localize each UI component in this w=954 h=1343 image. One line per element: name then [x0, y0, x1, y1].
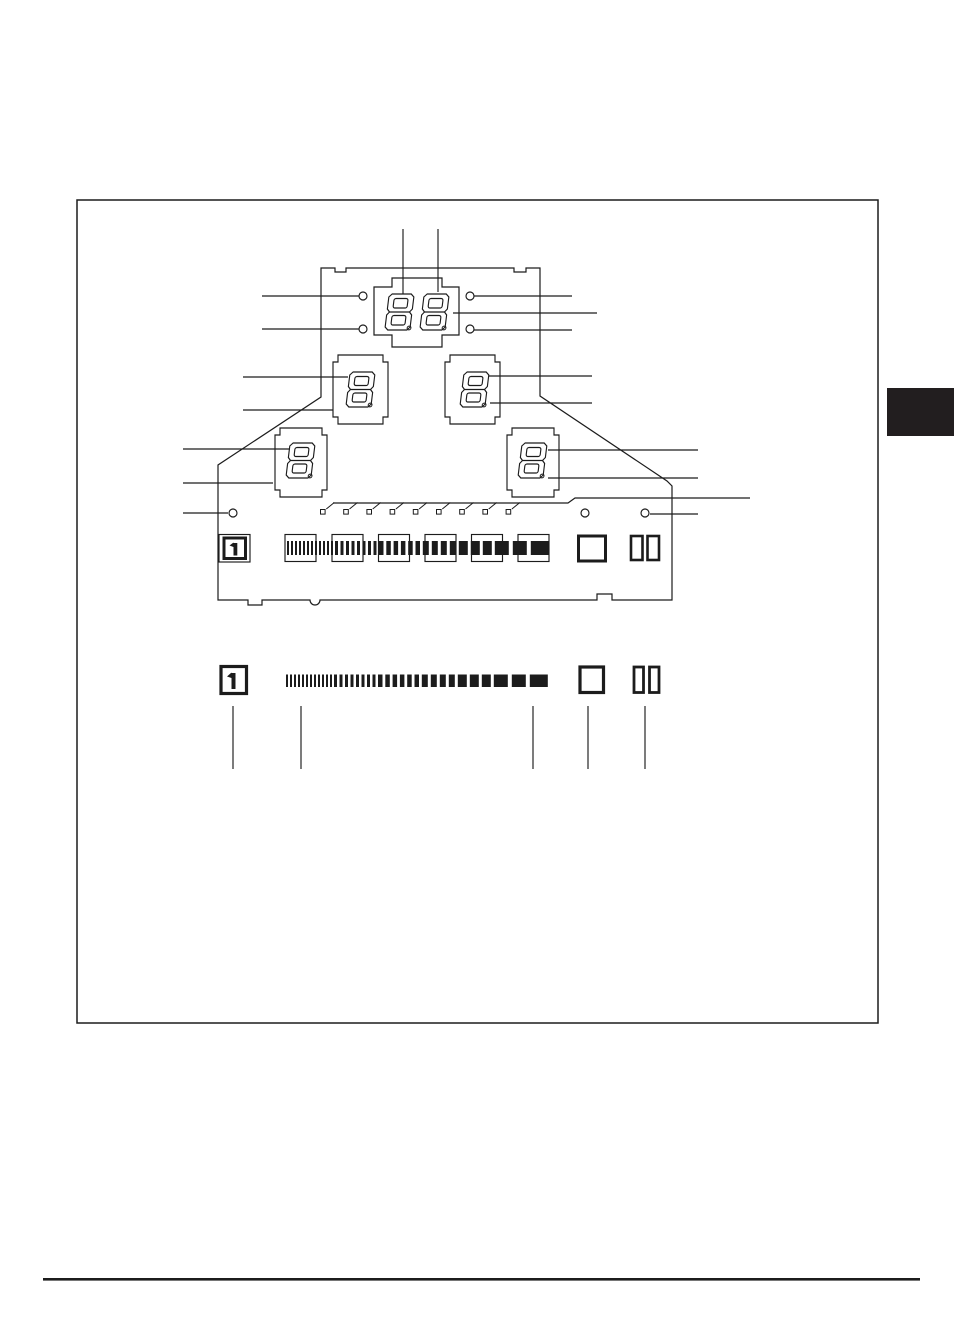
bar-segment	[330, 675, 332, 688]
bar-segment	[379, 541, 384, 555]
indicator-dot	[229, 509, 237, 517]
bar-segment	[458, 675, 467, 688]
square-window-icon	[579, 536, 606, 561]
bar-segment	[482, 675, 491, 688]
bar-segment	[326, 675, 328, 688]
bar-segment	[432, 541, 438, 555]
seven-segment-digit	[385, 294, 415, 330]
digit-window	[507, 428, 559, 497]
tick-mark	[437, 503, 451, 515]
bar-segment	[368, 541, 371, 555]
digit-bottom-loop	[292, 464, 307, 473]
indicator-dot	[581, 509, 589, 517]
bar-segment	[294, 675, 296, 688]
bar-segment	[306, 675, 308, 688]
tick-square	[344, 510, 349, 515]
seven-segment-digit	[460, 372, 490, 407]
indicator-dot	[466, 325, 474, 333]
bar-segment	[341, 541, 344, 555]
bar-scale-icon	[287, 541, 549, 555]
indicator-dot	[359, 292, 367, 300]
bar-segment	[530, 675, 548, 688]
bar-segment	[322, 675, 324, 688]
bar-segment	[483, 541, 492, 555]
bar-segment	[374, 541, 377, 555]
bar-segment	[394, 541, 399, 555]
one-glyph	[234, 543, 238, 556]
lcd-diagram-svg	[0, 0, 954, 1343]
digit-top-loop	[468, 377, 483, 386]
bar-segment	[299, 541, 301, 555]
bar-segment	[291, 541, 293, 555]
bar-segment	[319, 541, 321, 555]
bar-segment	[512, 675, 526, 688]
seven-segment-digit	[518, 443, 548, 478]
legend-row	[221, 667, 659, 770]
bar-segment	[340, 675, 343, 688]
bar-segment	[408, 541, 413, 555]
tick-square	[390, 510, 395, 515]
bar-segment	[345, 675, 348, 688]
double-bar-icon	[634, 667, 644, 693]
bar-segment	[314, 675, 316, 688]
bar-segment	[298, 675, 300, 688]
digit-top-loop	[354, 377, 369, 386]
tick-mark	[344, 503, 358, 515]
callout-line-jogged	[333, 498, 750, 503]
bar-segment	[393, 675, 398, 688]
bar-segment	[415, 675, 420, 688]
tick-mark	[413, 503, 427, 515]
boxed-one-icon	[221, 667, 247, 694]
bar-segment	[407, 675, 412, 688]
bar-segment	[449, 675, 455, 688]
bar-segment	[495, 541, 509, 555]
bar-segment	[400, 675, 405, 688]
bar-segment	[367, 675, 370, 688]
digit-bottom-loop	[466, 393, 481, 402]
indicator-dot	[641, 509, 649, 517]
digit-bottom-loop	[524, 464, 539, 473]
bar-segment	[286, 675, 288, 688]
tick-square	[460, 510, 465, 515]
double-bar-icon	[648, 536, 660, 560]
bar-segment	[323, 541, 325, 555]
tick-mark	[460, 503, 474, 515]
bar-segment	[357, 541, 360, 555]
tick-square	[413, 510, 418, 515]
bar-segment	[431, 675, 437, 688]
digit-bottom-loop	[426, 316, 441, 326]
bar-segment	[335, 541, 338, 555]
one-glyph-flag	[230, 543, 234, 548]
tick-mark	[506, 503, 520, 515]
bar-segment	[450, 541, 456, 555]
bar-segment	[362, 675, 365, 688]
indicator-dot	[466, 292, 474, 300]
bar-segment	[334, 675, 337, 688]
double-bar-icon	[631, 536, 643, 560]
bar-segment	[471, 541, 480, 555]
tick-mark	[367, 503, 381, 515]
bar-segment	[385, 675, 390, 688]
bar-segment	[441, 541, 447, 555]
bar-segment	[327, 541, 329, 555]
bar-segment	[373, 675, 376, 688]
one-glyph	[232, 673, 236, 689]
digit-bottom-loop	[391, 316, 406, 326]
bar-segment	[416, 541, 421, 555]
digit-top-loop	[393, 299, 408, 309]
tick-square	[367, 510, 372, 515]
two-digit-window	[374, 278, 459, 347]
digit-top-loop	[428, 299, 443, 309]
bar-segment	[356, 675, 359, 688]
bar-segment	[378, 675, 383, 688]
tick-flick	[326, 503, 334, 510]
indicator-dot	[359, 325, 367, 333]
bar-segment	[311, 541, 313, 555]
bar-segment	[346, 541, 349, 555]
tick-square	[483, 510, 488, 515]
bar-segment	[352, 541, 355, 555]
one-glyph-flag	[227, 673, 232, 679]
digit-window	[275, 428, 327, 497]
figure-border	[77, 200, 878, 1023]
bar-segment	[307, 541, 309, 555]
footer-rule	[43, 1278, 920, 1281]
bar-segment	[494, 675, 508, 688]
seven-segment-digit	[286, 443, 316, 478]
digit-top-loop	[294, 448, 309, 457]
tick-mark	[483, 503, 497, 515]
bar-segment	[318, 675, 320, 688]
bar-segment	[470, 675, 479, 688]
seven-segment-digit	[346, 372, 376, 407]
bar-segment	[513, 541, 527, 555]
manual-page	[0, 0, 954, 1343]
bar-segment	[290, 675, 292, 688]
tick-square	[437, 510, 442, 515]
bar-segment	[303, 541, 305, 555]
bar-segment	[287, 541, 289, 555]
bar-segment	[531, 541, 549, 555]
tick-square	[506, 510, 511, 515]
bar-segment	[401, 541, 406, 555]
double-bar-icon	[650, 667, 660, 693]
tick-square	[321, 510, 326, 515]
seven-segment-digit	[420, 294, 450, 330]
bar-segment	[386, 541, 391, 555]
digit-bottom-loop	[352, 393, 367, 402]
square-window-icon	[580, 667, 604, 693]
bar-segment	[459, 541, 468, 555]
panel-icon-row	[219, 535, 659, 563]
bar-segment	[351, 675, 354, 688]
bar-segment	[310, 675, 312, 688]
bar-segment	[295, 541, 297, 555]
tick-mark	[390, 503, 404, 515]
boxed-one-icon	[219, 535, 250, 563]
bar-segment	[302, 675, 304, 688]
bar-segment	[440, 675, 446, 688]
bar-segment	[422, 675, 428, 688]
digit-top-loop	[526, 448, 541, 457]
bar-segment	[423, 541, 429, 555]
section-tab	[887, 388, 954, 436]
tick-mark	[321, 503, 335, 515]
bar-scale-icon	[286, 675, 548, 688]
